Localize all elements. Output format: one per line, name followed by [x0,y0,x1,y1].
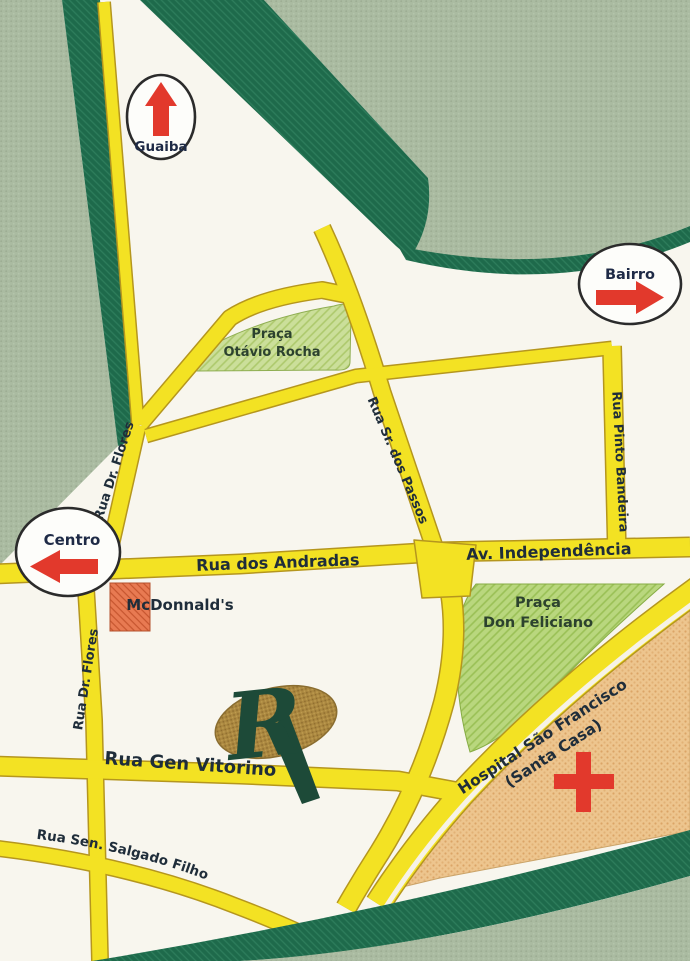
arrow-right-shaft [596,290,636,305]
map-frame: R Praça Otávio Rocha Praça Don Feliciano… [0,0,690,961]
sign-centro-oval [16,508,120,596]
sign-centro: Centro [16,508,120,596]
sign-guaiba: Guaiba [127,75,195,159]
sign-centro-label: Centro [44,531,101,549]
praca-otavio-rocha-label-1: Praça [251,327,292,342]
praca-don-feliciano-label-2: Don Feliciano [483,615,593,631]
city-map: R Praça Otávio Rocha Praça Don Feliciano… [0,0,690,961]
praca-don-feliciano-label-1: Praça [515,595,561,611]
sign-bairro-label: Bairro [605,267,655,283]
sign-bairro-oval [579,244,681,324]
sign-guaiba-label: Guaiba [134,139,187,155]
mcdonalds-label: McDonnald's [126,596,234,614]
arrow-up-shaft [153,106,169,136]
arrow-left-shaft [58,559,98,574]
sign-bairro: Bairro [579,244,681,324]
praca-otavio-rocha-label-2: Otávio Rocha [223,345,320,360]
hospital-cross-vertical [576,752,591,812]
